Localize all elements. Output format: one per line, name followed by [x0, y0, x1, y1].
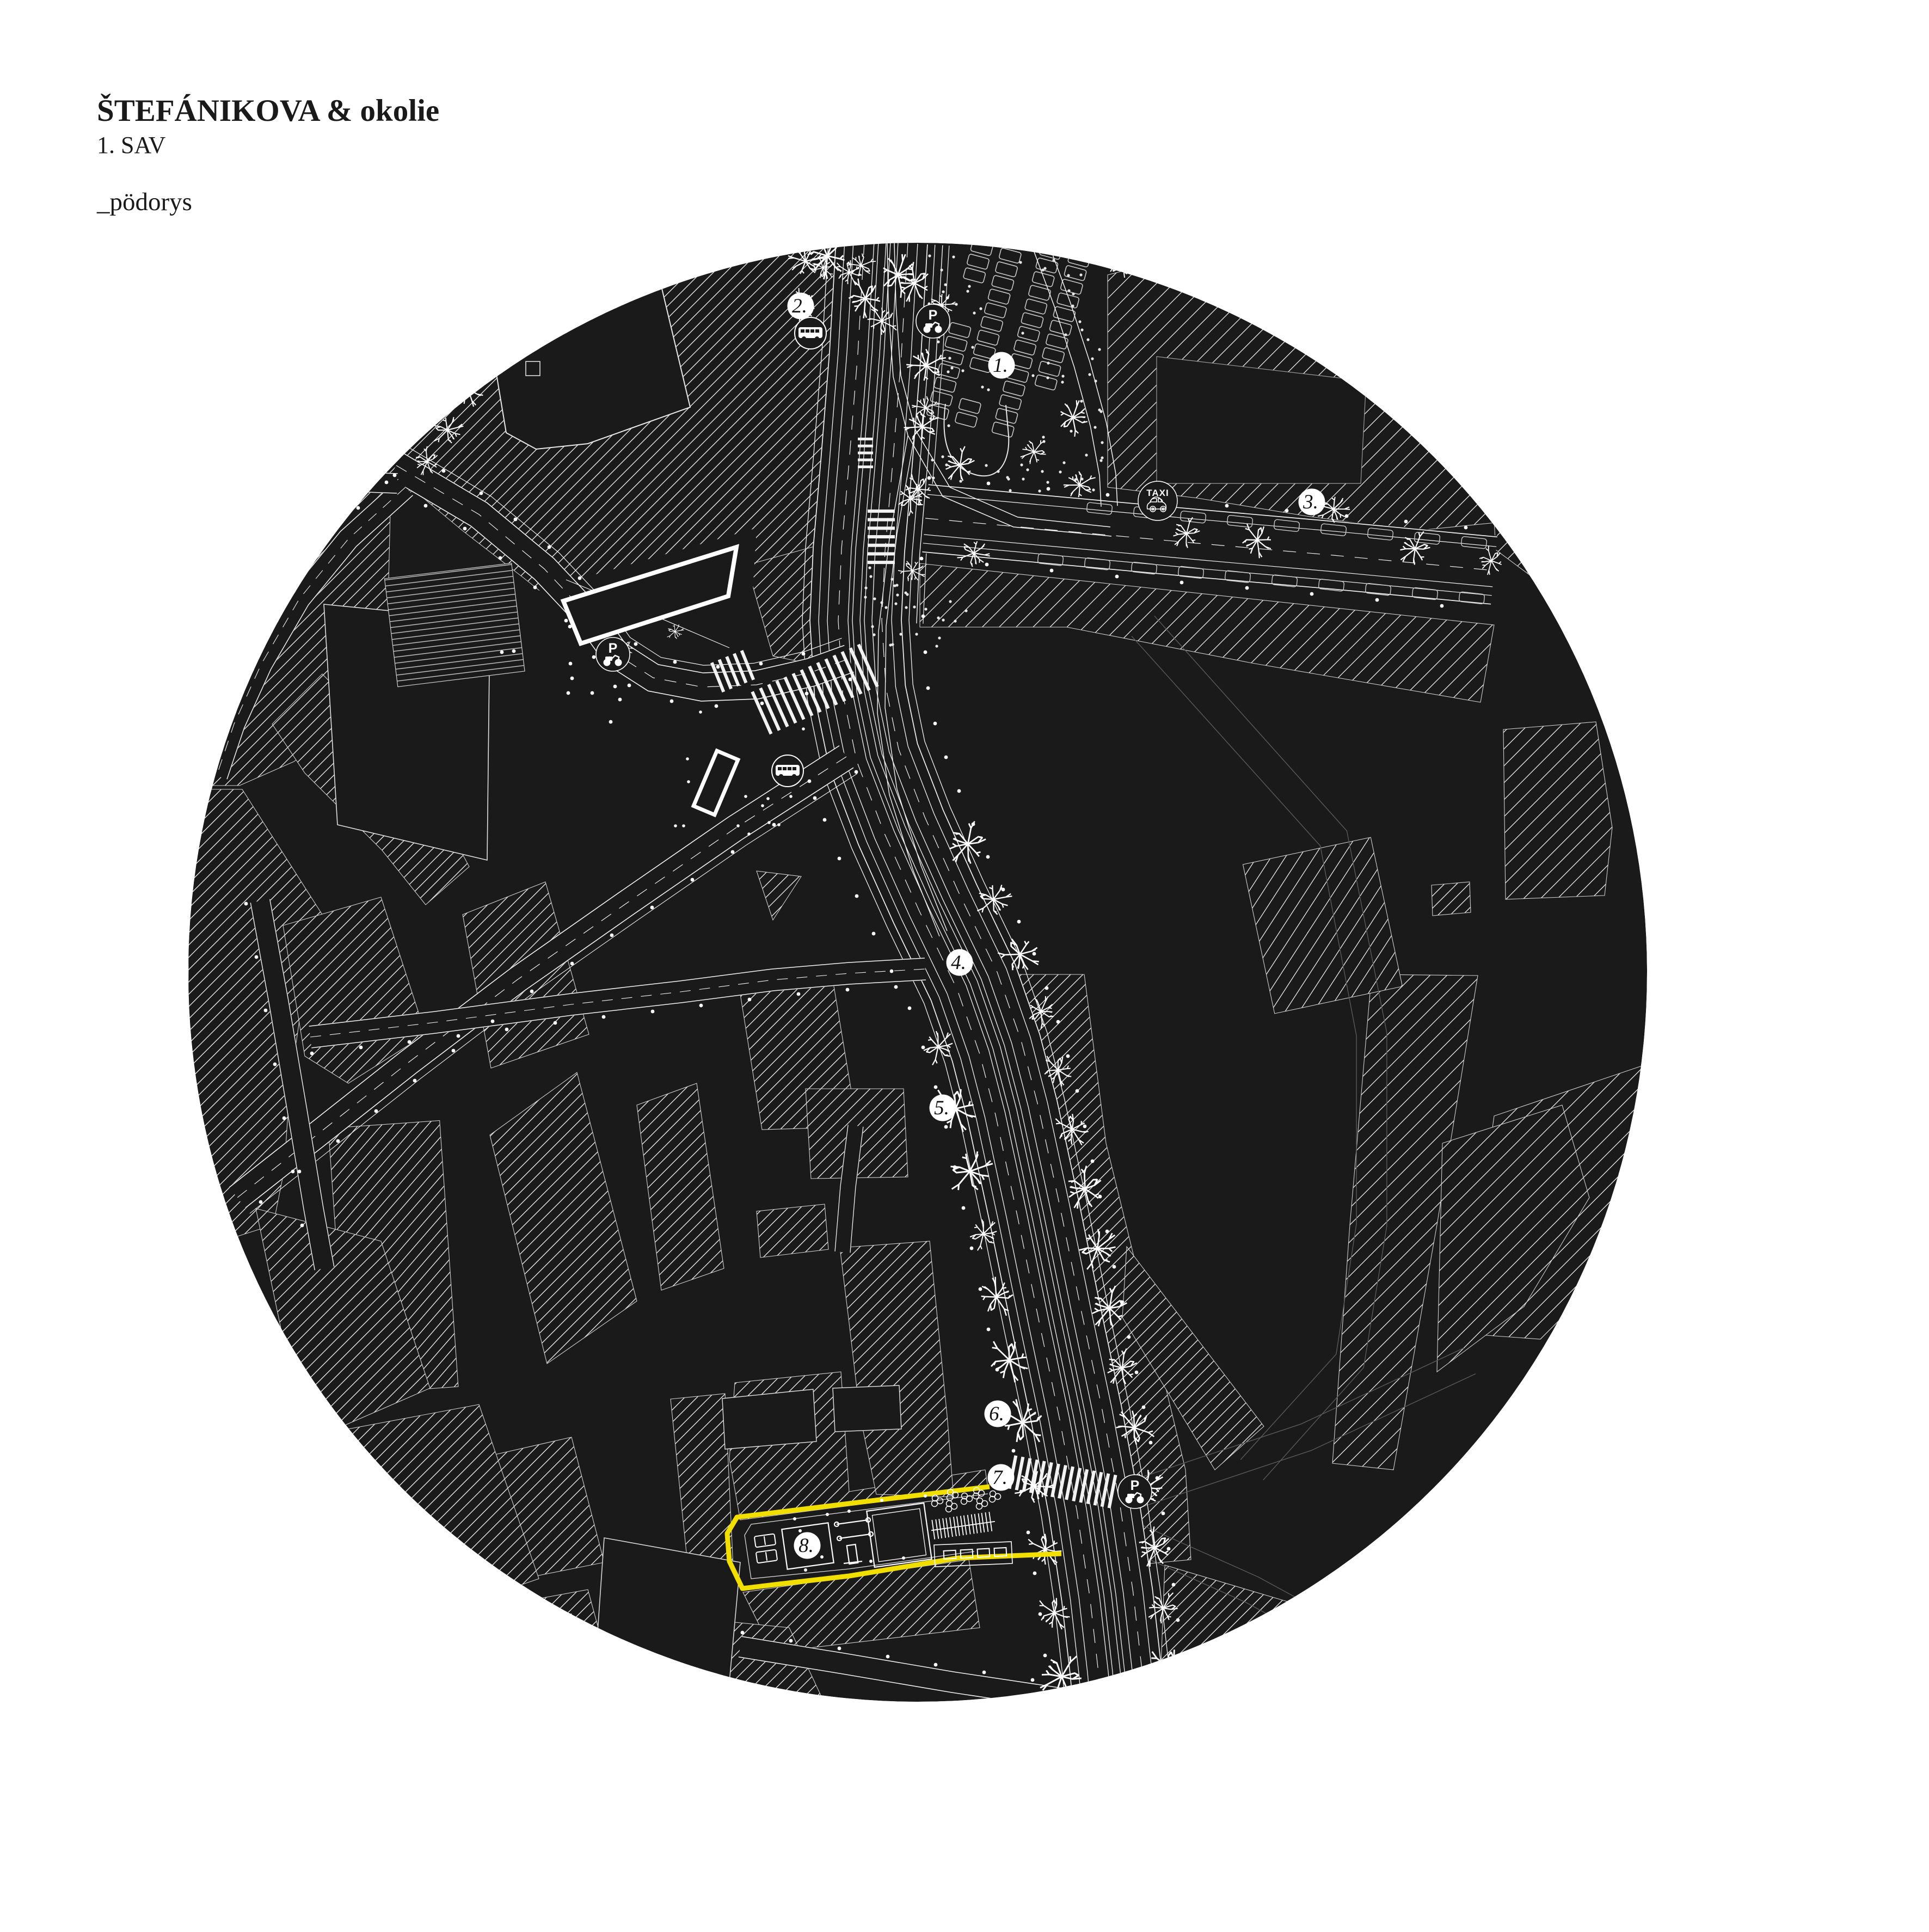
svg-text:P: P	[609, 641, 618, 656]
svg-text:P: P	[929, 308, 938, 323]
svg-text:4.: 4.	[951, 952, 966, 974]
svg-text:_pödorys: _pödorys	[96, 188, 192, 216]
svg-text:8.: 8.	[798, 1535, 814, 1557]
svg-text:1.: 1.	[993, 354, 1008, 377]
svg-text:3.: 3.	[1303, 491, 1318, 513]
svg-text:5.: 5.	[934, 1097, 949, 1119]
svg-text:6.: 6.	[989, 1403, 1004, 1425]
svg-text:ŠTEFÁNIKOVA & okolie: ŠTEFÁNIKOVA & okolie	[97, 94, 439, 128]
svg-text:1. SAV: 1. SAV	[97, 132, 166, 158]
svg-text:P: P	[1131, 1478, 1140, 1493]
svg-text:2.: 2.	[792, 295, 807, 317]
svg-text:TAXI: TAXI	[1146, 488, 1169, 498]
svg-text:7.: 7.	[992, 1467, 1007, 1489]
